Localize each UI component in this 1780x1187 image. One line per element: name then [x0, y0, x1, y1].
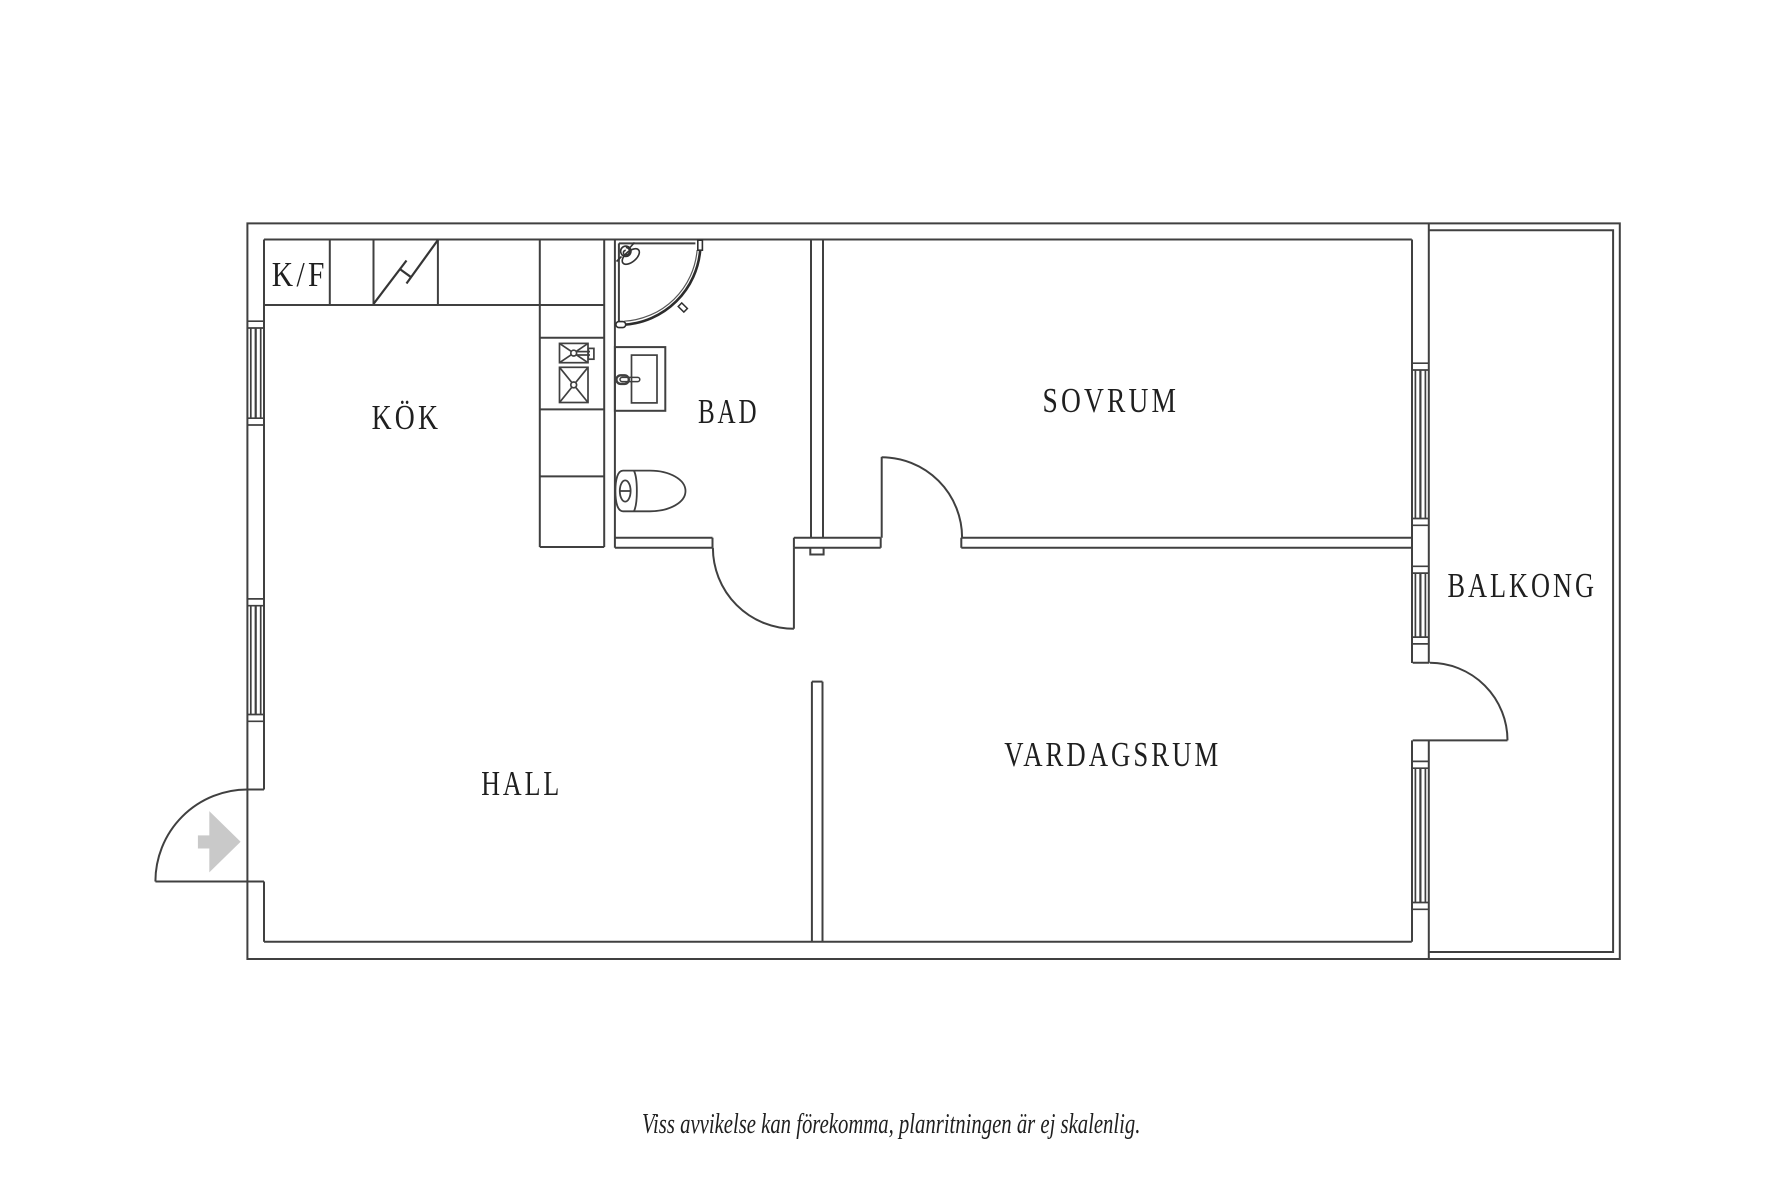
svg-text:BAD: BAD — [698, 392, 760, 431]
svg-text:Viss avvikelse kan förekomma,: Viss avvikelse kan förekomma, planritnin… — [642, 1108, 1141, 1140]
svg-text:SOVRUM: SOVRUM — [1043, 381, 1180, 420]
svg-text:KÖK: KÖK — [372, 398, 442, 437]
svg-text:BALKONG: BALKONG — [1447, 566, 1597, 605]
svg-text:VARDAGSRUM: VARDAGSRUM — [1004, 735, 1221, 774]
svg-text:K/F: K/F — [272, 255, 328, 294]
svg-text:HALL: HALL — [481, 764, 562, 803]
